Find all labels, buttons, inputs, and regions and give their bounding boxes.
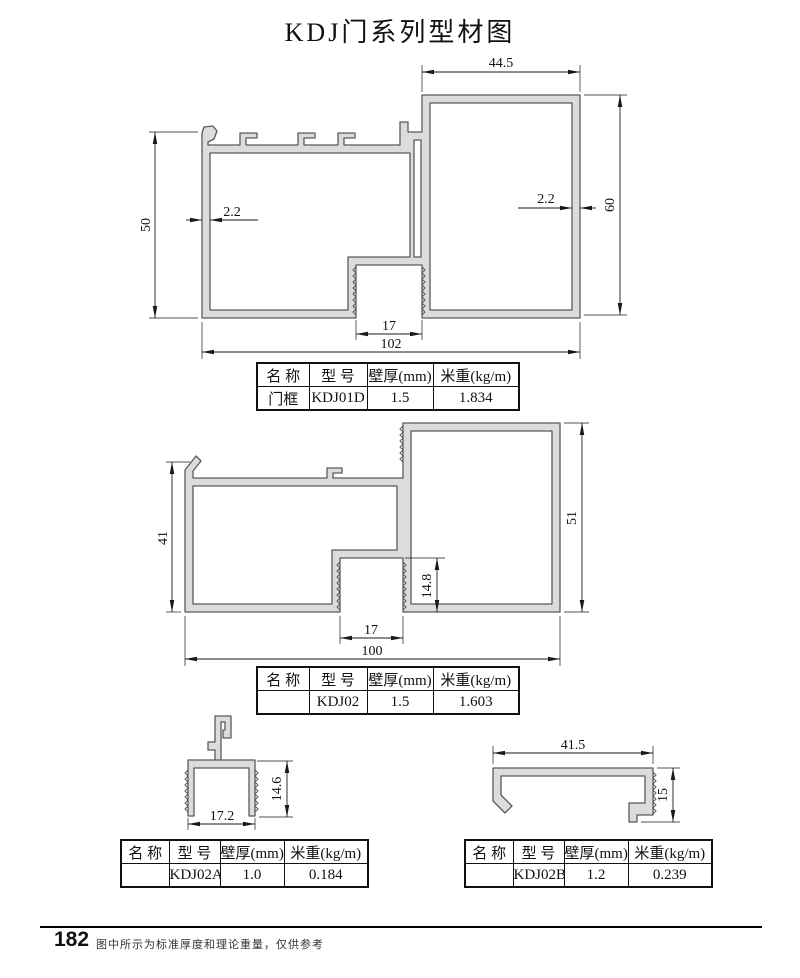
cell-thickness: 1.5 [367,691,433,715]
header-weight: 米重(kg/m) [284,840,368,864]
cell-thickness: 1.0 [220,864,284,888]
cell-weight: 1.834 [433,387,519,411]
cell-name [121,864,169,888]
cell-name: 门框 [257,387,309,411]
dim-p4-height: 15 [656,788,671,802]
profile-1-drawing: 44.5 60 50 2.2 2.2 17 102 [139,56,627,359]
footer-divider [40,926,762,928]
header-weight: 米重(kg/m) [433,363,519,387]
dim-p2-slot-depth: 14.8 [420,574,435,599]
dim-p2-total-width: 100 [362,644,383,659]
profile-4-drawing: 41.5 15 [493,738,680,822]
dim-p1-slot-width: 17 [382,319,396,334]
table-header-row: 名 称 型 号 壁厚(mm) 米重(kg/m) [465,840,712,864]
profile-3-outline [188,760,255,816]
cell-weight: 0.184 [284,864,368,888]
table-row: 门框 KDJ01D 1.5 1.834 [257,387,519,411]
header-name: 名 称 [121,840,169,864]
table-header-row: 名 称 型 号 壁厚(mm) 米重(kg/m) [121,840,368,864]
cell-model: KDJ01D [309,387,367,411]
dim-p1-top-width: 44.5 [489,56,514,71]
dim-p2-slot-width: 17 [364,623,378,638]
profile-3-hook-outline [208,716,231,766]
profile-2-drawing: 41 51 14.8 17 100 [156,423,589,666]
cell-weight: 1.603 [433,691,519,715]
dim-p1-height-left: 50 [139,218,154,232]
cell-model: KDJ02B [513,864,564,888]
spec-table-kdj02a: 名 称 型 号 壁厚(mm) 米重(kg/m) KDJ02A 1.0 0.184 [120,839,369,888]
header-model: 型 号 [309,667,367,691]
profile-drawings-canvas: 44.5 60 50 2.2 2.2 17 102 [0,0,800,978]
profile-3-drawing: 17.2 14.6 [185,716,293,830]
cell-name [257,691,309,715]
header-model: 型 号 [309,363,367,387]
spec-table-kdj01d: 名 称 型 号 壁厚(mm) 米重(kg/m) 门框 KDJ01D 1.5 1.… [256,362,520,411]
header-thickness: 壁厚(mm) [367,363,433,387]
dim-p3-width: 17.2 [210,809,235,824]
cell-thickness: 1.2 [564,864,628,888]
header-name: 名 称 [257,667,309,691]
table-header-row: 名 称 型 号 壁厚(mm) 米重(kg/m) [257,667,519,691]
dim-p1-wall-left: 2.2 [223,205,241,220]
dim-p2-height-right: 51 [565,511,580,525]
header-model: 型 号 [513,840,564,864]
header-weight: 米重(kg/m) [628,840,712,864]
table-row: KDJ02B 1.2 0.239 [465,864,712,888]
profile-1-outline [202,95,580,318]
cell-model: KDJ02A [169,864,220,888]
table-row: KDJ02 1.5 1.603 [257,691,519,715]
dim-p3-height: 14.6 [270,777,285,802]
table-header-row: 名 称 型 号 壁厚(mm) 米重(kg/m) [257,363,519,387]
header-thickness: 壁厚(mm) [367,667,433,691]
header-model: 型 号 [169,840,220,864]
table-row: KDJ02A 1.0 0.184 [121,864,368,888]
cell-name [465,864,513,888]
profile-2-serration-top [400,426,403,462]
dim-p1-height-right: 60 [603,198,618,212]
profile-4-outline [493,768,653,822]
spec-table-kdj02: 名 称 型 号 壁厚(mm) 米重(kg/m) KDJ02 1.5 1.603 [256,666,520,715]
profile-2-outline [185,423,560,612]
dim-p2-height-left: 41 [156,531,171,545]
dim-p4-width: 41.5 [561,738,586,753]
dim-p1-total-width: 102 [381,337,402,352]
header-thickness: 壁厚(mm) [564,840,628,864]
header-weight: 米重(kg/m) [433,667,519,691]
page-number: 182 [54,929,89,950]
header-name: 名 称 [257,363,309,387]
footer-note: 图中所示为标准厚度和理论重量，仅供参考 [96,936,324,952]
header-name: 名 称 [465,840,513,864]
spec-table-kdj02b: 名 称 型 号 壁厚(mm) 米重(kg/m) KDJ02B 1.2 0.239 [464,839,713,888]
cell-weight: 0.239 [628,864,712,888]
header-thickness: 壁厚(mm) [220,840,284,864]
dim-p1-wall-right: 2.2 [537,192,555,207]
cell-model: KDJ02 [309,691,367,715]
cell-thickness: 1.5 [367,387,433,411]
